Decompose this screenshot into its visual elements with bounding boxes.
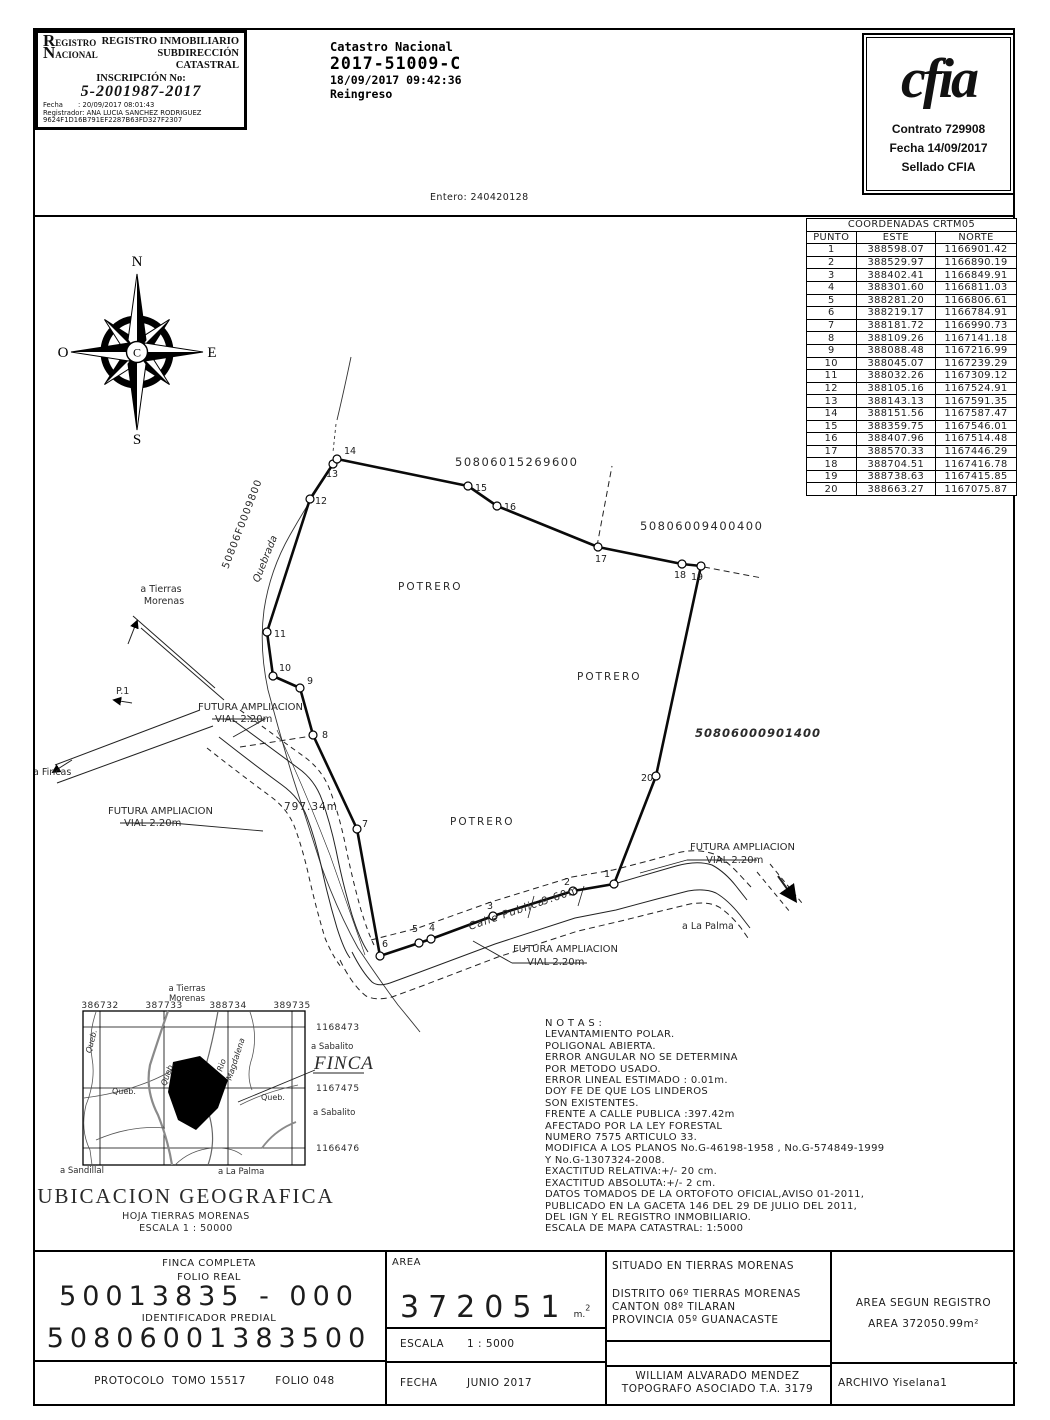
coord-cell: 1167216.99 [936, 344, 1017, 357]
coord-cell: 388704.51 [856, 458, 936, 471]
coord-cell: 388151.56 [856, 407, 936, 420]
coord-cell: 1166784.91 [936, 307, 1017, 320]
area-value: 372051 m.2 [400, 1290, 590, 1325]
coords-row: 3388402.411166849.91 [807, 269, 1017, 282]
coord-cell: 1166849.91 [936, 269, 1017, 282]
coord-cell: 15 [807, 420, 857, 433]
coord-cell: 17 [807, 445, 857, 458]
escala-value: 1 : 5000 [467, 1338, 515, 1350]
coords-row: 16388407.961167514.48 [807, 433, 1017, 446]
coords-row: 7388181.721166990.73 [807, 319, 1017, 332]
coord-cell: 10 [807, 357, 857, 370]
cadastral-plan-sheet: C N S E O [0, 0, 1050, 1420]
identificador-number: 50806001383500 [33, 1323, 385, 1354]
distrito-label: DISTRITO 06º TIERRAS MORENAS [612, 1288, 801, 1300]
coord-cell: 1167239.29 [936, 357, 1017, 370]
catastro-datetime: 18/09/2017 09:42:36 [330, 73, 462, 87]
cfia-date: Fecha 14/09/2017 [867, 139, 1010, 158]
coord-cell: 12 [807, 382, 857, 395]
catastro-title: Catastro Nacional [330, 40, 462, 54]
stamp-hash: 9624F1D16B791EF2287B63FD327F2307 [43, 117, 239, 125]
coord-cell: 6 [807, 307, 857, 320]
coord-cell: 388529.97 [856, 256, 936, 269]
coord-cell: 1167524.91 [936, 382, 1017, 395]
coords-row: 8388109.261167141.18 [807, 332, 1017, 345]
canton-label: CANTON 08º TILARAN [612, 1301, 736, 1313]
registry-stamp: REGISTRO NACIONAL REGISTRO INMOBILIARIO … [35, 30, 247, 130]
coord-cell: 1167415.85 [936, 470, 1017, 483]
coord-cell: 1166890.19 [936, 256, 1017, 269]
coord-cell: 1167141.18 [936, 332, 1017, 345]
fecha-value: JUNIO 2017 [467, 1377, 532, 1389]
coord-cell: 18 [807, 458, 857, 471]
coords-row: 4388301.601166811.03 [807, 281, 1017, 294]
coord-cell: 1 [807, 244, 857, 257]
coord-cell: 1167075.87 [936, 483, 1017, 496]
coord-cell: 1166811.03 [936, 281, 1017, 294]
stamp-title-1: REGISTRO INMOBILIARIO [102, 36, 239, 48]
titleblock-divider-h6 [830, 1362, 1017, 1364]
catastro-status: Reingreso [330, 87, 462, 101]
titleblock-divider-h4 [605, 1340, 830, 1342]
situado-label: SITUADO EN TIERRAS MORENAS [612, 1260, 794, 1272]
topografo-title: TOPOGRAFO ASOCIADO T.A. 3179 [605, 1383, 830, 1395]
coordinates-table: COORDENADAS CRTM05 PUNTO ESTE NORTE 1388… [806, 218, 1017, 496]
topografo-name: WILLIAM ALVARADO MENDEZ [605, 1370, 830, 1382]
coord-cell: 11 [807, 370, 857, 383]
coord-cell: 388143.13 [856, 395, 936, 408]
coord-cell: 9 [807, 344, 857, 357]
coord-cell: 16 [807, 433, 857, 446]
stamp-title-2: SUBDIRECCIÓN [102, 48, 239, 60]
coords-header-norte: NORTE [936, 231, 1017, 244]
area-number: 372051 [400, 1290, 569, 1325]
titleblock-divider-h5 [605, 1365, 830, 1367]
finca-completa-label: FINCA COMPLETA [33, 1258, 385, 1269]
coord-cell: 14 [807, 407, 857, 420]
coord-cell: 388105.16 [856, 382, 936, 395]
registro-nacional-logo: REGISTRO NACIONAL [43, 36, 98, 72]
coord-cell: 7 [807, 319, 857, 332]
coord-cell: 5 [807, 294, 857, 307]
coords-row: 13388143.131167591.35 [807, 395, 1017, 408]
area-unit-sup: 2 [585, 1304, 590, 1313]
coord-cell: 388663.27 [856, 483, 936, 496]
coords-row: 19388738.631167415.85 [807, 470, 1017, 483]
coords-row: 5388281.201166806.61 [807, 294, 1017, 307]
catastro-number: 2017-51009-C [330, 54, 462, 73]
cfia-logo: cfia [867, 38, 1010, 120]
coords-row: 1388598.071166901.42 [807, 244, 1017, 257]
coord-cell: 19 [807, 470, 857, 483]
coords-row: 11388032.261167309.12 [807, 370, 1017, 383]
coord-cell: 388570.33 [856, 445, 936, 458]
area-registro-value: AREA 372050.99m² [830, 1318, 1017, 1330]
survey-notes: N O T A S : LEVANTAMIENTO POLAR. POLIGON… [545, 1018, 1015, 1235]
coord-cell: 1166990.73 [936, 319, 1017, 332]
coord-cell: 1167309.12 [936, 370, 1017, 383]
provincia-label: PROVINCIA 05º GUANACASTE [612, 1314, 779, 1326]
stamp-title-3: CATASTRAL [102, 60, 239, 72]
coords-header-punto: PUNTO [807, 231, 857, 244]
coord-cell: 13 [807, 395, 857, 408]
titleblock-divider-h3 [385, 1361, 605, 1363]
folio-048-label: FOLIO 048 [250, 1375, 360, 1387]
coord-cell: 1167587.47 [936, 407, 1017, 420]
cfia-seal: cfia Contrato 729908 Fecha 14/09/2017 Se… [862, 33, 1015, 195]
coord-cell: 8 [807, 332, 857, 345]
coords-row: 18388704.511167416.78 [807, 458, 1017, 471]
coord-cell: 3 [807, 269, 857, 282]
archivo-label: ARCHIVO Yiselana1 [838, 1377, 947, 1389]
coord-cell: 388301.60 [856, 281, 936, 294]
catastro-header: Catastro Nacional 2017-51009-C 18/09/201… [330, 40, 462, 101]
coords-row: 2388529.971166890.19 [807, 256, 1017, 269]
coord-cell: 388598.07 [856, 244, 936, 257]
cfia-contract: Contrato 729908 [867, 120, 1010, 139]
coord-cell: 388738.63 [856, 470, 936, 483]
coord-cell: 388032.26 [856, 370, 936, 383]
coord-cell: 388109.26 [856, 332, 936, 345]
coord-cell: 388281.20 [856, 294, 936, 307]
coords-row: 14388151.561167587.47 [807, 407, 1017, 420]
area-unit: m. [574, 1310, 586, 1320]
coords-row: 6388219.171166784.91 [807, 307, 1017, 320]
entero-number: Entero: 240420128 [430, 192, 529, 203]
coord-cell: 2 [807, 256, 857, 269]
coord-cell: 1167416.78 [936, 458, 1017, 471]
area-label: AREA [392, 1257, 421, 1268]
coord-cell: 20 [807, 483, 857, 496]
escala-label: ESCALA [400, 1338, 444, 1350]
coord-cell: 388088.48 [856, 344, 936, 357]
coord-cell: 1167591.35 [936, 395, 1017, 408]
titleblock-divider-h1 [33, 1360, 385, 1362]
coords-table-title: COORDENADAS CRTM05 [807, 219, 1017, 232]
inscripcion-number: 5-2001987-2017 [43, 84, 239, 100]
fecha-label: FECHA [400, 1377, 438, 1389]
coords-row: 17388570.331167446.29 [807, 445, 1017, 458]
coord-cell: 1167446.29 [936, 445, 1017, 458]
coords-row: 9388088.481167216.99 [807, 344, 1017, 357]
folio-real-number: 50013835 - 000 [33, 1281, 385, 1312]
coord-cell: 388402.41 [856, 269, 936, 282]
coord-cell: 388045.07 [856, 357, 936, 370]
titleblock-divider-v1 [385, 1252, 387, 1406]
coord-cell: 388407.96 [856, 433, 936, 446]
coords-row: 12388105.161167524.91 [807, 382, 1017, 395]
coords-row: 10388045.071167239.29 [807, 357, 1017, 370]
coord-cell: 1166901.42 [936, 244, 1017, 257]
coord-cell: 4 [807, 281, 857, 294]
coords-header-este: ESTE [856, 231, 936, 244]
coord-cell: 388181.72 [856, 319, 936, 332]
coord-cell: 388219.17 [856, 307, 936, 320]
cfia-sello: Sellado CFIA [867, 158, 1010, 177]
coord-cell: 1167514.48 [936, 433, 1017, 446]
coord-cell: 1167546.01 [936, 420, 1017, 433]
coords-row: 15388359.751167546.01 [807, 420, 1017, 433]
protocolo-label: PROTOCOLO TOMO 15517 [60, 1375, 280, 1387]
titleblock-divider-h2 [385, 1327, 605, 1329]
coord-cell: 1166806.61 [936, 294, 1017, 307]
coords-row: 20388663.271167075.87 [807, 483, 1017, 496]
area-registro-label: AREA SEGUN REGISTRO [830, 1297, 1017, 1309]
coord-cell: 388359.75 [856, 420, 936, 433]
